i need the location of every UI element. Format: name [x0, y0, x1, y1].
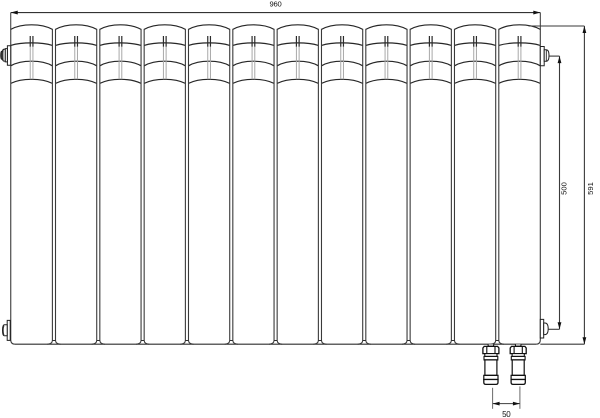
- svg-text:960: 960: [269, 0, 281, 8]
- svg-text:50: 50: [502, 410, 511, 418]
- svg-text:500: 500: [560, 182, 569, 195]
- svg-text:591: 591: [586, 182, 595, 195]
